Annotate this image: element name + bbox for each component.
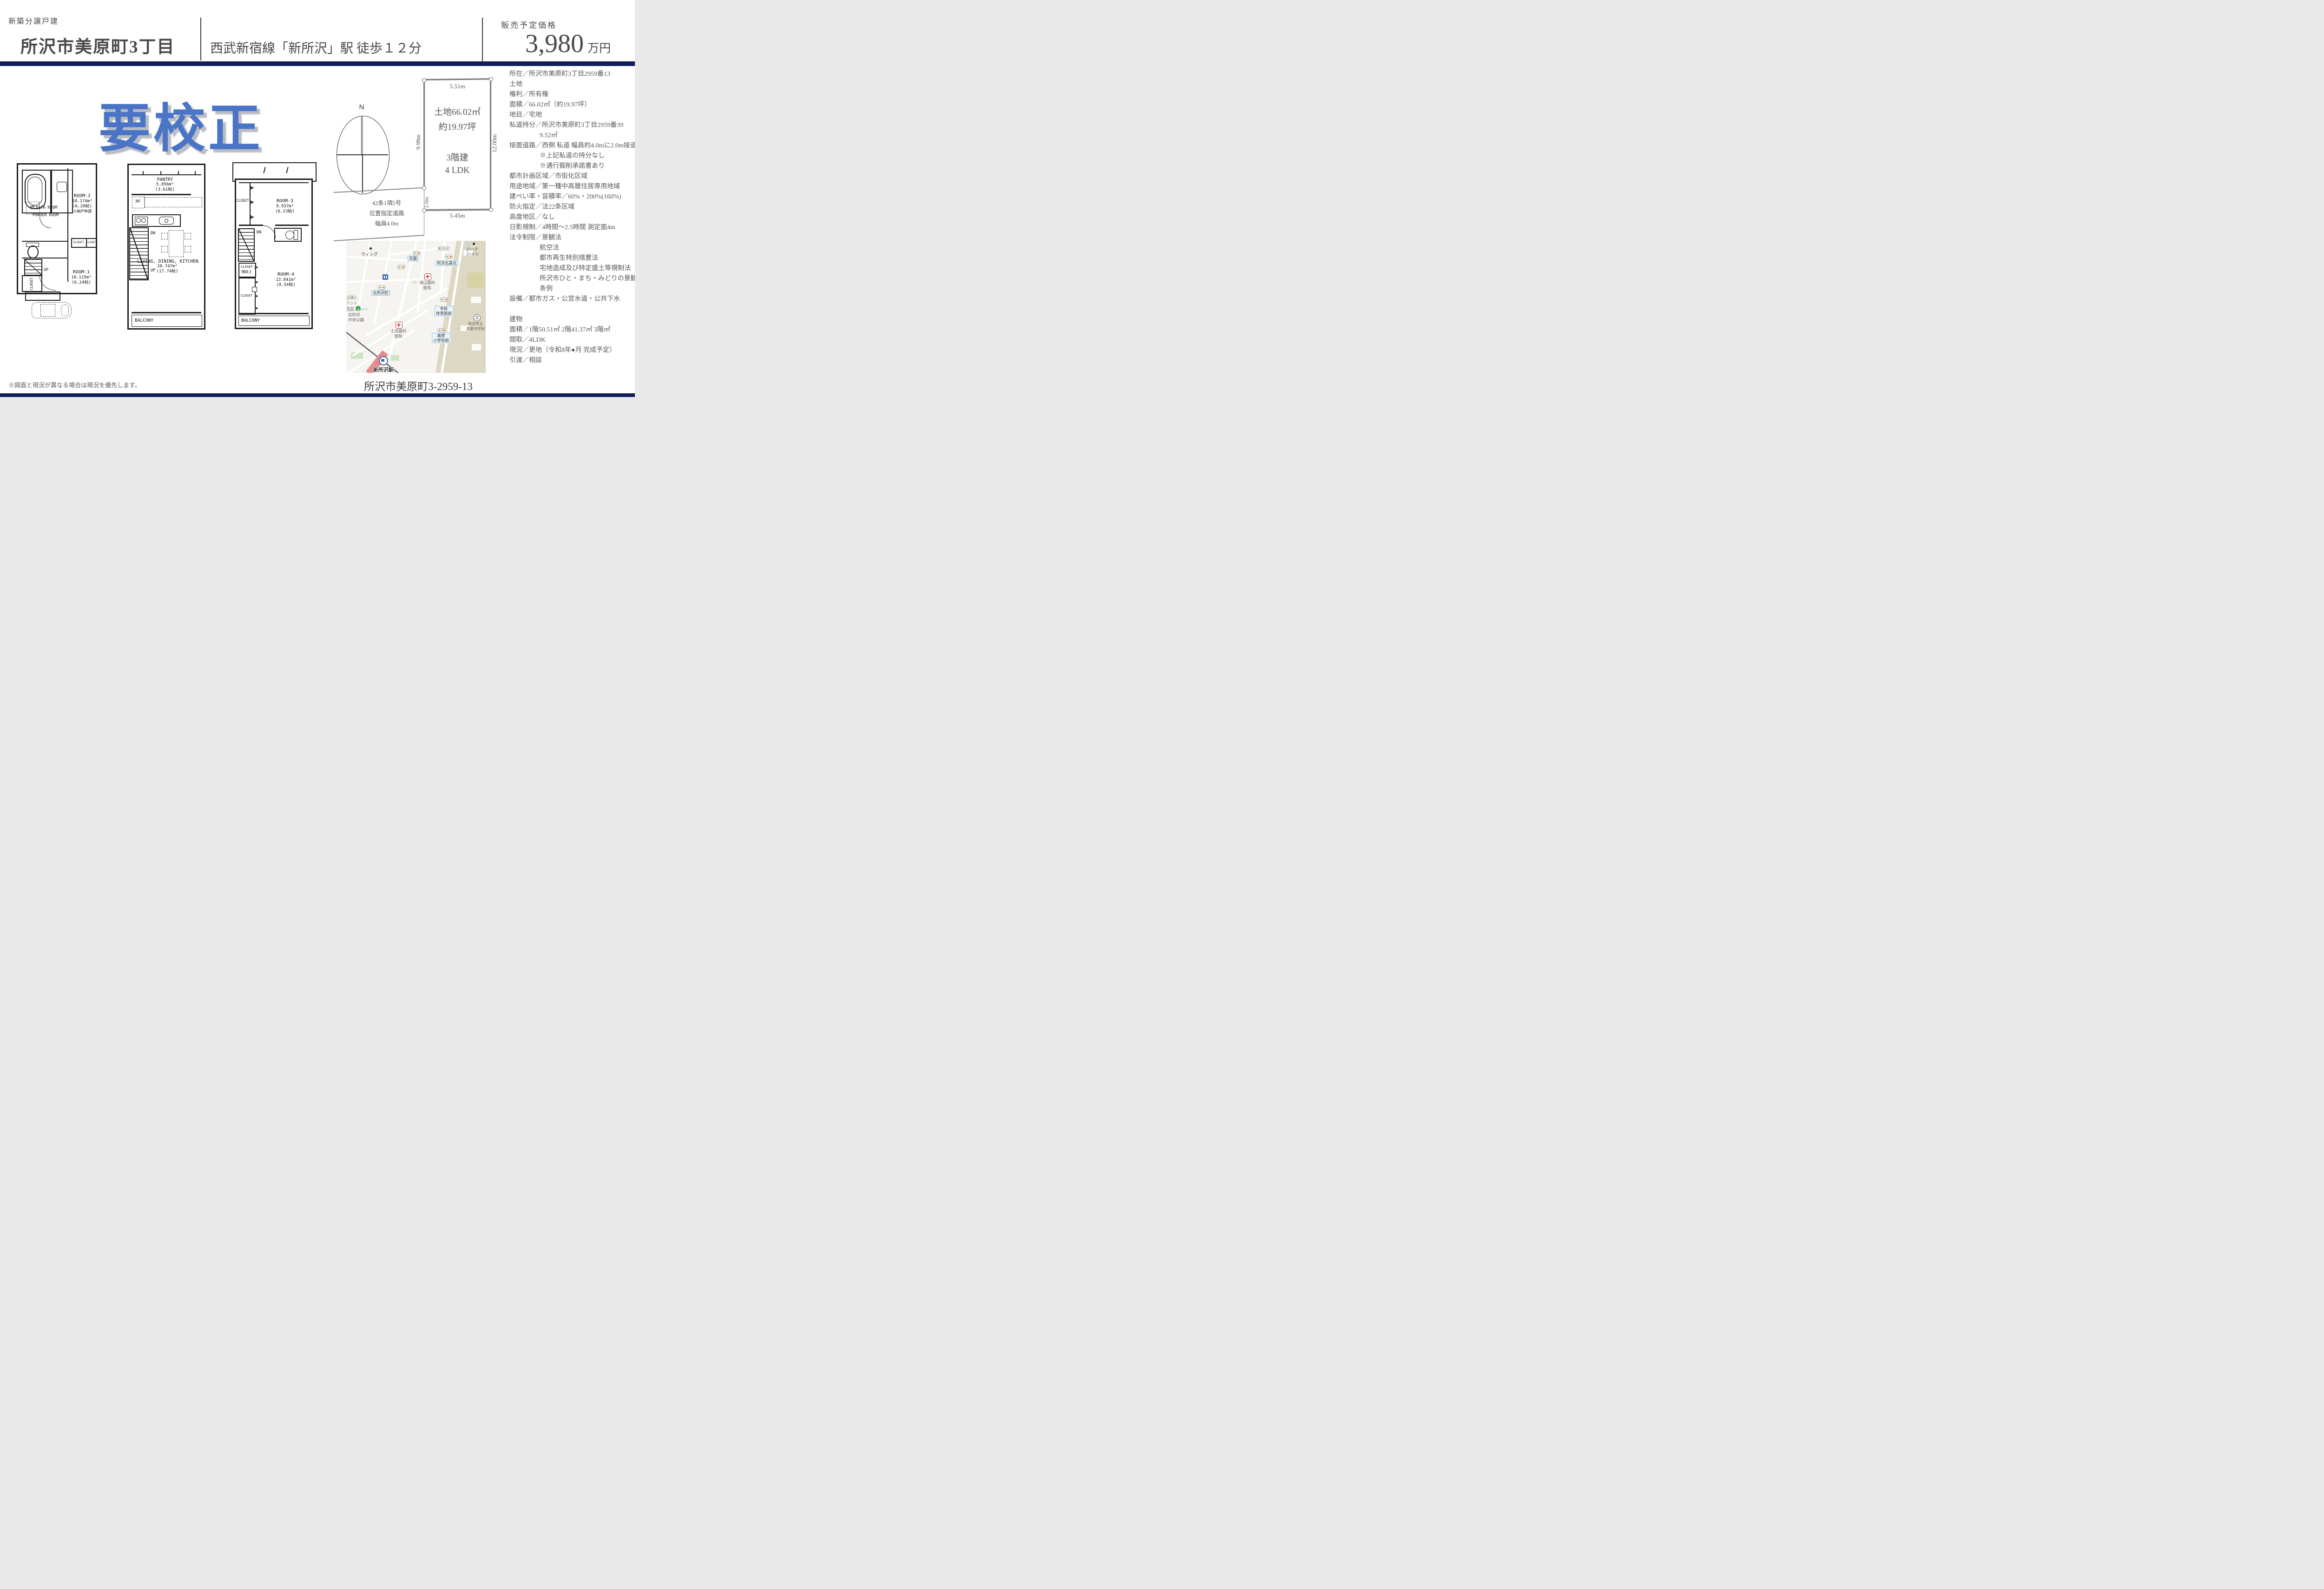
dim-right: 12.00m — [491, 130, 498, 152]
label-kita-tokorozawa: 北所沢町 — [371, 290, 390, 296]
toilet-room-3f — [274, 228, 302, 242]
detail-line: 面積／66.02㎡（約19.97坪） — [509, 100, 634, 110]
sink-icon — [159, 217, 174, 225]
label-chuo-koen-1: 北所沢 — [348, 312, 360, 317]
powder-wall — [22, 241, 67, 242]
detail-line: 宅地造成及び特定盛土等規制法 — [509, 264, 634, 274]
road-designation-3: 幅員4.0m — [354, 218, 419, 227]
header-divider-left — [200, 18, 201, 60]
lot-vertex-tl — [422, 78, 426, 82]
closet-b: CLOSET — [86, 238, 97, 248]
detail-line: 都市計画区域／市街化区域 — [509, 172, 634, 182]
floorplan-1f: BATH ROOM ROOM-2 10.174m² (6.28帖) ※納戸申請 … — [17, 163, 97, 294]
map-building-4 — [472, 344, 481, 351]
label-fragment-3: 育園 — [346, 307, 354, 311]
detail-line: 間取／4LDK — [509, 335, 634, 345]
room3-label: ROOM-3 9.937m² (6.13帖) — [271, 199, 299, 214]
label-chugaku-2: 美原中学校 — [461, 327, 486, 331]
room4-jo: (8.54帖) — [271, 283, 301, 288]
detail-line: ※上記私道の持分なし — [509, 151, 634, 161]
detail-line: 権利／所有権 — [509, 90, 634, 100]
label-shimin-taiikukan: 市民 体育館前 — [435, 306, 453, 316]
bank-pillar-1 — [384, 276, 385, 278]
room1-name: ROOM-1 — [67, 270, 95, 275]
lot-area-sqm: 土地66.02㎡ — [425, 105, 490, 118]
page-title: 所沢市美原町3丁目 — [20, 33, 175, 58]
closet-a: CLOSET — [71, 238, 87, 248]
stairs-dn-label: DN — [254, 230, 264, 235]
vanity-icon — [57, 182, 67, 192]
detail-line: 条例 — [509, 284, 634, 294]
traffic-light-icon — [445, 255, 452, 259]
bank-pillar-2 — [386, 276, 387, 278]
detail-line: 防火指定／法22条区域 — [509, 202, 634, 212]
sink-drain — [165, 219, 168, 223]
detail-line: 私道持分／所沢市美原町3丁目2959番39 — [509, 120, 634, 131]
parking-car-outline — [32, 302, 72, 318]
dim-left: 9.98m — [415, 129, 422, 150]
detail-line: 建物 — [509, 315, 634, 325]
park-trunk — [358, 309, 359, 311]
map-sports-field — [467, 272, 485, 288]
map-building-2 — [471, 297, 481, 303]
room2-note: ※納戸申請 — [68, 209, 96, 214]
closet-low-box: CLOSET — [238, 278, 256, 315]
price-row: 3,980 万円 — [525, 29, 611, 59]
toilet-bowl-icon — [285, 231, 294, 239]
balcony-3f-label: BALCONY — [241, 318, 267, 323]
room3-jo: (6.13帖) — [271, 209, 299, 214]
road-designation-1: 42条1項5号 — [354, 198, 419, 207]
closet-stairs-box: CLOSET 階段上 — [238, 263, 256, 278]
traffic-light-icon — [378, 285, 385, 290]
pantry-shelf — [132, 194, 191, 195]
label-tsuchida-2: 医院 — [387, 334, 409, 338]
station-train-glyph — [381, 359, 384, 362]
closet-stairs-label2: 階段上 — [239, 270, 254, 274]
window-tick-1 — [143, 171, 144, 175]
compass-north-label: N — [355, 103, 369, 111]
label-wing: ウィング — [361, 252, 378, 257]
bank-icon — [383, 274, 388, 280]
detail-line: 建ぺい率・容積率／60%・200%(160%) — [509, 192, 634, 202]
stairs-3f — [238, 228, 255, 262]
lot-edge-bottom — [424, 209, 491, 211]
station-access: 西武新宿線「新所沢」駅 徒歩１２分 — [210, 38, 422, 57]
closet-a-label: CLOSET — [72, 241, 85, 245]
detail-line: ※通行掘削承諾書あり — [509, 161, 634, 172]
detail-line: 接面道路／西側 私道 幅員約4.0mに2.0m接道 — [509, 141, 634, 151]
window-tick-2 — [160, 171, 161, 175]
map-road-1 — [358, 241, 372, 305]
label-hanazono: 花園 — [408, 256, 418, 261]
lot-floors: 3階建 — [425, 151, 490, 163]
school-icon: 文 — [474, 314, 481, 321]
fridge-label: RF — [133, 199, 143, 204]
room2-name: ROOM-2 — [68, 193, 96, 199]
room2-area: 10.174m² — [68, 199, 96, 204]
road-designation-2: 位置指定道路 — [354, 208, 419, 217]
detail-line: 都市再生特別措置法 — [509, 253, 634, 264]
traffic-light-icon — [413, 251, 420, 255]
label-suyama-2: 医院 — [416, 285, 438, 290]
room1-area: 10.115m² — [67, 275, 95, 280]
label-shimin-line2: 体育館前 — [436, 311, 452, 316]
balcony-3f: BALCONY — [238, 316, 310, 326]
map-caption-address: 所沢市美原町3-2959-13 — [346, 377, 490, 393]
map-green-2 — [391, 355, 399, 361]
lot-vertex-ml — [422, 186, 426, 190]
label-mihara-sho-line2: 小学校前 — [433, 338, 449, 343]
clinic-icon-tsuchida — [396, 322, 403, 329]
label-mihara-cho: 美原町 — [437, 246, 450, 252]
floorplan-2f: PANTRY 5.856m² (3.61帖) RF DN UP LIVING, … — [127, 164, 205, 330]
chair-2 — [161, 246, 168, 252]
label-suyama-1: 須山歯科 — [416, 280, 438, 285]
poi-dot-wing — [370, 247, 372, 250]
compass-needle — [361, 116, 363, 155]
proof-watermark: 要校正 — [99, 86, 263, 162]
room4-name: ROOM-4 — [271, 272, 301, 278]
traffic-light-icon — [440, 298, 448, 302]
chair-1 — [161, 233, 168, 239]
entrance-porch — [25, 291, 60, 301]
window-tick-4 — [195, 171, 196, 175]
toilet-tank-icon — [26, 243, 39, 247]
ldk-jo: (17.74帖) — [137, 269, 198, 274]
stairs-dn-label: DN — [148, 231, 158, 236]
header-divider-right — [482, 18, 483, 61]
room4-label: ROOM-4 13.841m² (8.54帖) — [271, 272, 301, 288]
closet-door-tri-1 — [251, 186, 254, 190]
school-glyph: 文 — [475, 315, 479, 320]
washer-label: WM — [26, 205, 38, 210]
chair-4 — [185, 246, 191, 252]
balcony-2f-label: BALCONY — [135, 318, 161, 323]
ldk-area: 28.747m² — [137, 264, 198, 269]
traffic-light-icon — [397, 265, 405, 269]
label-shimin-line1: 市民 — [436, 306, 452, 311]
toilet-bowl-icon — [27, 245, 39, 258]
road-line-upper — [334, 187, 424, 193]
ldk-name: LIVING, DINING, KITCHEN — [137, 259, 198, 264]
room2-jo: (6.28帖) — [68, 204, 96, 209]
property-category: 新築分譲戸建 — [8, 15, 59, 26]
property-details: 所在／所沢市美原町3丁目2959番13 土地 権利／所有権 面積／66.02㎡（… — [509, 69, 634, 366]
dim-bottom: 5.45m — [434, 212, 481, 219]
pantry-area: 5.856m² — [142, 182, 188, 187]
pantry-name: PANTRY — [142, 177, 188, 182]
flyer-page: 新築分譲戸建 所沢市美原町3丁目 西武新宿線「新所沢」駅 徒歩１２分 販売予定価… — [0, 0, 635, 397]
detail-line: 所在／所沢市美原町3丁目2959番13 — [509, 69, 634, 79]
poi-dot-park-heights — [473, 243, 475, 245]
window-wall — [132, 174, 201, 175]
closet-low-label: CLOSET — [239, 294, 254, 298]
balcony-2f: BALCONY — [132, 315, 202, 327]
detail-line: 現況／更地（令和8年●月 完成予定） — [509, 345, 634, 356]
room1-jo: (6.24帖) — [67, 280, 95, 285]
closet-stairs-label1: CLOSET — [239, 265, 254, 269]
detail-line: 用途地域／第一種中高層住居専用地域 — [509, 182, 634, 192]
ldk-label: LIVING, DINING, KITCHEN 28.747m² (17.74帖… — [137, 259, 198, 274]
label-chugaku-1: 所沢市立 — [461, 322, 486, 326]
pantry-jo: (3.61帖) — [142, 187, 188, 192]
toilet-wall — [22, 258, 67, 258]
roof-mark-1 — [263, 167, 265, 173]
detail-line: 面積／1階50.51㎡ 2階41.37㎡ 3階㎡ — [509, 325, 634, 335]
detail-line: 設備／都市ガス・公営水道・公共下水 — [509, 294, 634, 305]
lot-vertex-bl — [422, 208, 426, 212]
room4-area: 13.841m² — [271, 278, 301, 283]
pantry-label: PANTRY 5.856m² (3.61帖) — [142, 177, 188, 192]
ldk-bottom-wall — [132, 312, 201, 313]
closet-door-tri-5 — [255, 280, 258, 284]
disclaimer-note: ※図面と現況が異なる場合は現況を優先します。 — [8, 380, 141, 389]
washer-box: WM — [26, 202, 40, 214]
detail-line: 地目／宅地 — [509, 110, 634, 120]
closet3-top-label: CLOSET — [235, 199, 250, 203]
toilet-tank-icon — [294, 230, 298, 240]
room2-label: ROOM-2 10.174m² (6.28帖) ※納戸申請 — [68, 193, 96, 213]
location-map: 新所沢駅 ウィング 美原町 パーク ハイツ 花園 所沢北高北 須山歯科 医院 北… — [346, 241, 486, 373]
label-chuo-koen-2: 中央公園 — [348, 318, 364, 322]
detail-line: 所沢市ひと・まち・みどりの景観 — [509, 274, 634, 284]
room3-bottom-wall — [239, 225, 263, 226]
station-icon — [379, 356, 388, 365]
clinic-icon-suyama — [424, 273, 431, 280]
partition-wall — [67, 168, 68, 282]
closet-door-tri-2 — [251, 200, 254, 204]
counter-dashed — [145, 197, 202, 207]
price-unit: 万円 — [588, 39, 611, 56]
label-mihara-shogakko: 美原 小学校前 — [432, 333, 450, 343]
traffic-light-icon — [437, 328, 445, 332]
closet-b-label: CLOSET — [86, 241, 96, 245]
lot-layout: 4 LDK — [425, 166, 490, 176]
footer-navy-bar — [0, 393, 635, 397]
detail-line: 航空法 — [509, 243, 634, 253]
label-fragment-2: アンド — [346, 301, 357, 306]
room1-label: ROOM-1 10.115m² (6.24帖) — [67, 270, 95, 285]
detail-line: 法令制限／景観法 — [509, 233, 634, 243]
bathtub-inner — [27, 177, 42, 205]
room4-bottom-wall — [238, 313, 309, 314]
map-road-6 — [346, 255, 411, 262]
stove-icon — [135, 217, 148, 225]
burner-2 — [141, 218, 146, 223]
station-label: 新所沢駅 — [369, 367, 398, 373]
lot-vertex-br — [489, 208, 493, 212]
detail-line — [509, 305, 634, 315]
dim-top: 5.51m — [434, 83, 481, 90]
room3-name: ROOM-3 — [271, 199, 299, 204]
lot-area-tsubo: 約19.97坪 — [425, 120, 490, 132]
lot-edge-top — [424, 78, 491, 80]
dim-frontage: 2.0m — [423, 192, 430, 208]
label-tsuchida-1: 土田歯科 — [387, 329, 409, 333]
detail-line: 日影規制／4時間～2.5時間 測定面4m — [509, 223, 634, 233]
label-park-heights-2: ハイツ — [467, 252, 479, 257]
room3-door-arc — [263, 225, 276, 238]
label-fragment-1: 止法人 — [346, 296, 357, 300]
powder-door-arc — [40, 217, 51, 228]
park-icon — [356, 306, 361, 311]
car-front — [61, 305, 69, 316]
detail-line: 高度地区／なし — [509, 212, 634, 223]
header-navy-bar — [0, 61, 635, 66]
floorplan-3f: CLOSET ROOM-3 9.937m² (6.13帖) DN CLOSET … — [235, 179, 313, 329]
window-tick-3 — [178, 171, 179, 175]
detail-line: 9.52㎡ — [509, 131, 634, 141]
label-tokorozawa-kita-north: 所沢北高北 — [436, 260, 458, 266]
label-park-heights-1: パーク — [466, 247, 478, 252]
closet-door-tri-6 — [255, 294, 258, 298]
lot-vertex-tr — [489, 77, 493, 81]
detail-line: 引渡／相談 — [509, 356, 634, 366]
room3-bottom-wall2 — [275, 225, 309, 226]
burner-1 — [136, 218, 141, 223]
price-value: 3,980 — [525, 29, 584, 59]
stairs-up-label: UP — [41, 268, 51, 272]
road-line-lower — [334, 235, 424, 241]
label-mihara-sho-line1: 美原 — [433, 333, 449, 338]
compass-vertical-lower — [362, 155, 363, 193]
chair-3 — [185, 233, 191, 239]
closet-door-tri-3 — [251, 215, 254, 219]
road-edge-extension — [424, 210, 424, 235]
room3-area: 9.937m² — [271, 204, 299, 209]
closet-handle — [252, 287, 257, 292]
roof-mark-2 — [286, 167, 288, 173]
dining-table — [169, 230, 184, 257]
closet-door-tri-4 — [255, 265, 258, 269]
kitchen-counter — [132, 214, 181, 227]
fridge-box: RF — [132, 197, 145, 208]
closet-door-tri-7 — [255, 306, 258, 310]
detail-line: 土地 — [509, 79, 634, 90]
car-cabin — [40, 304, 55, 317]
